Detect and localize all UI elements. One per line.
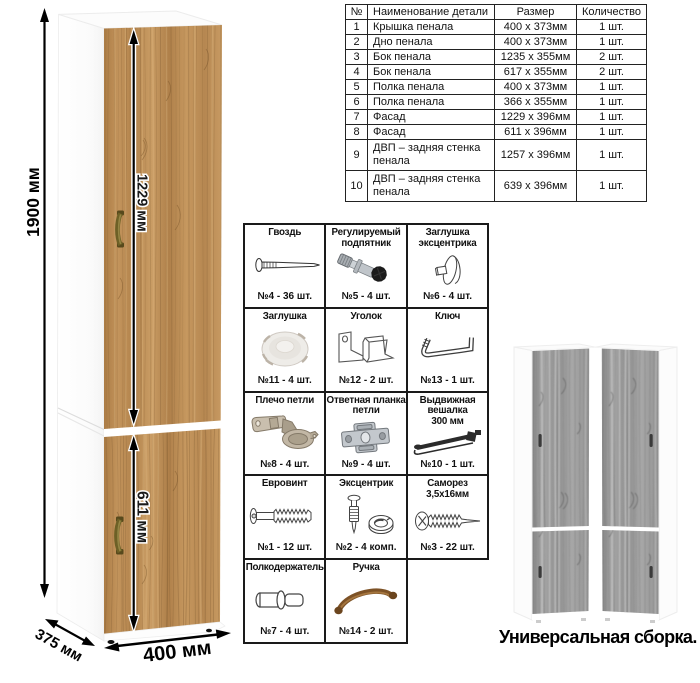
svg-text:1229 мм: 1229 мм [134,174,150,232]
svg-text:611 мм: 611 мм [134,491,151,543]
svg-text:1900 мм: 1900 мм [23,167,43,237]
svg-text:375 мм: 375 мм [32,626,85,666]
